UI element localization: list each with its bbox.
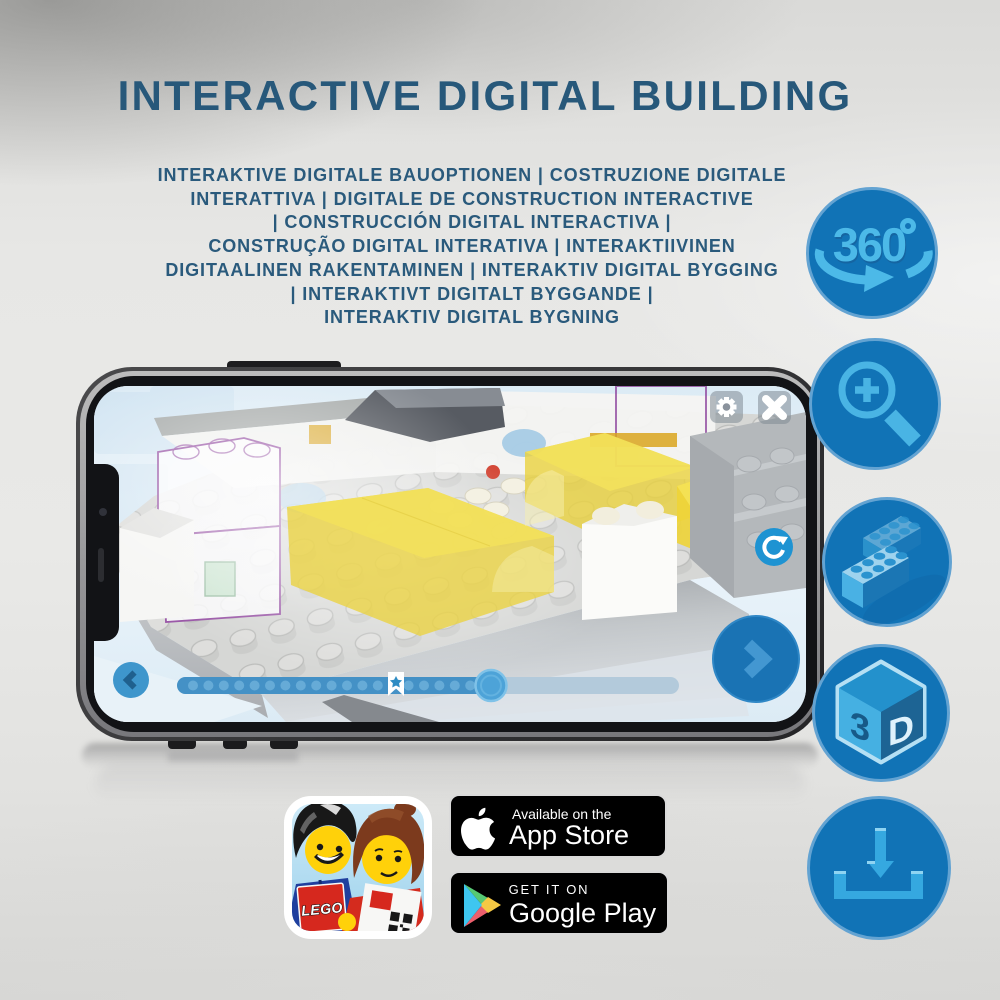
svg-text:App Store: App Store	[509, 820, 629, 850]
svg-text:GET IT ON: GET IT ON	[509, 882, 590, 897]
svg-text:360: 360	[833, 218, 906, 271]
svg-text:Google Play: Google Play	[509, 898, 657, 928]
svg-text:D: D	[888, 706, 914, 754]
svg-text:3: 3	[850, 704, 870, 750]
